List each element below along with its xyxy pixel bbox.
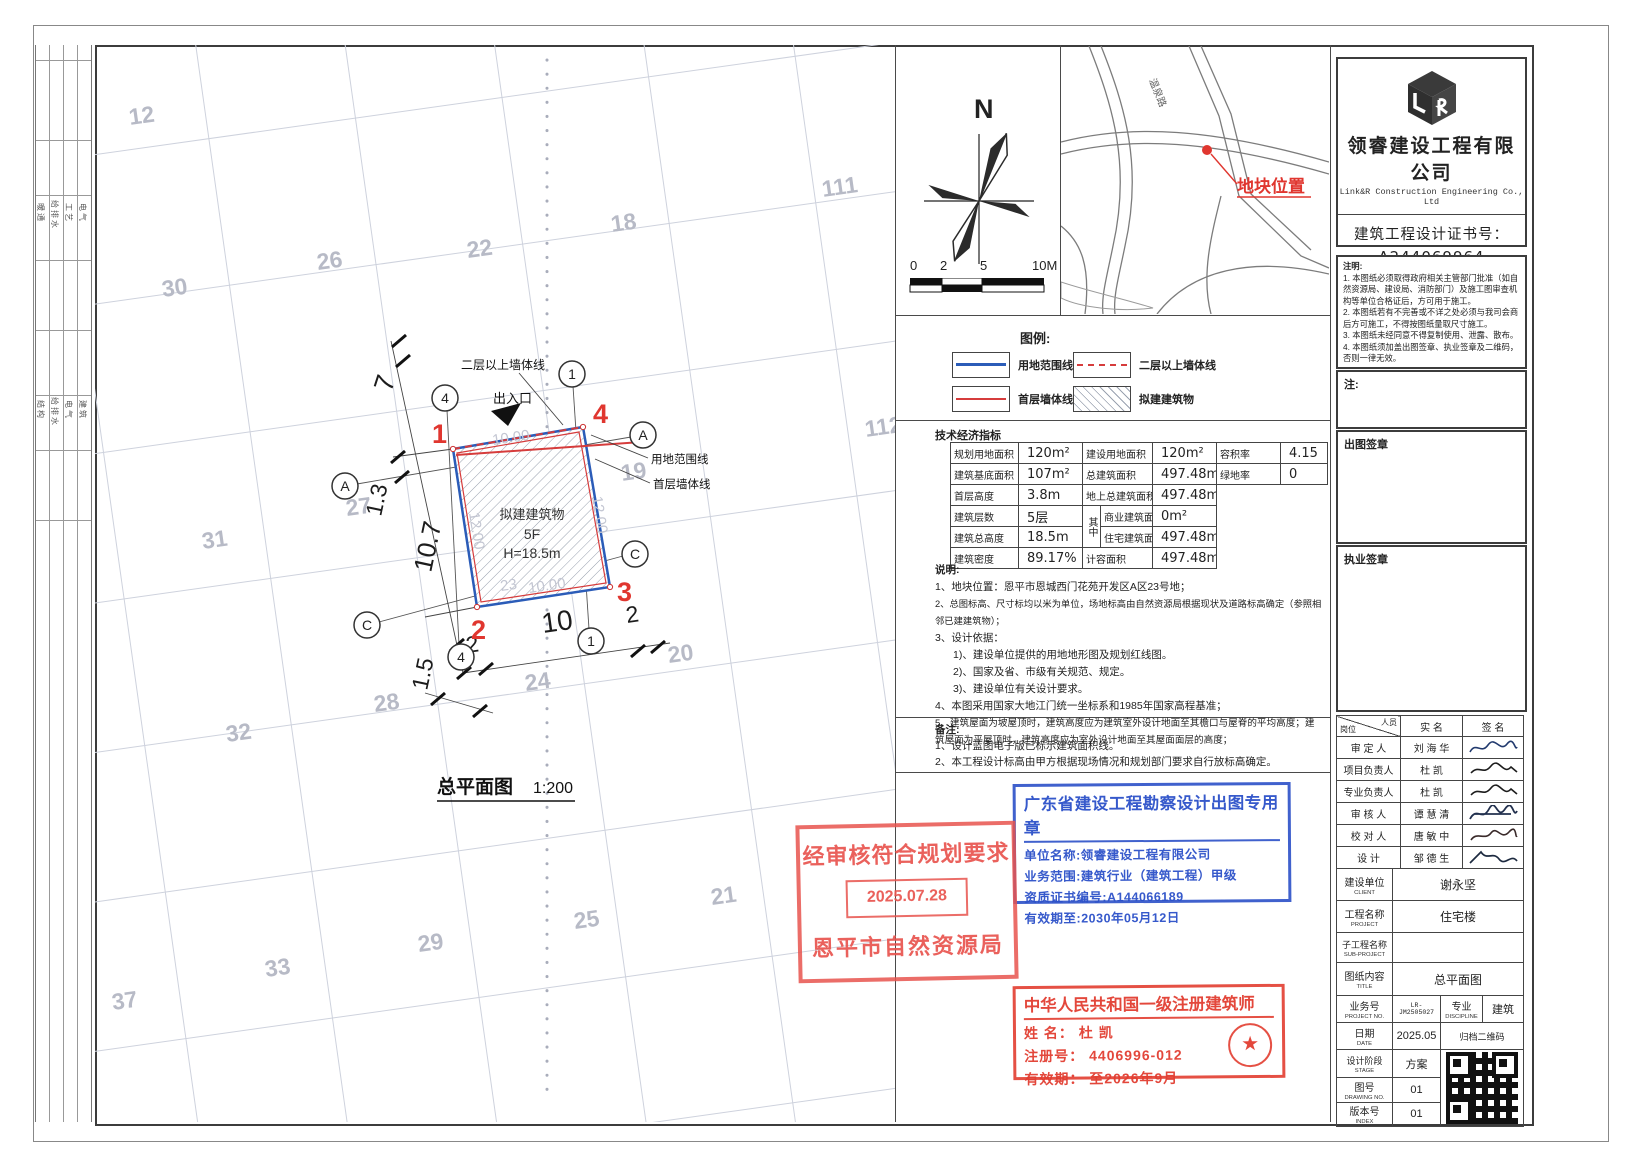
stamp-date: 2025.07.28 [846, 878, 969, 919]
divider [895, 772, 1330, 773]
personnel-header-sign: 签 名 [1463, 716, 1524, 737]
plan-caption-text: 总平面图 [437, 775, 513, 798]
tech-value: 3.8m [1019, 485, 1083, 506]
tech-label: 建设用地面积 [1083, 443, 1153, 464]
header-person: 人员 [1381, 717, 1397, 728]
plot-number: 111 [820, 171, 859, 202]
tech-label: 建筑总高度 [951, 527, 1019, 548]
personnel-name: 杜 凯 [1401, 759, 1463, 781]
company-name: 领睿建设工程有限公司 [1338, 131, 1525, 185]
plot-number: 20 [666, 639, 695, 668]
dim-text: 1.3 [360, 481, 392, 518]
strip-label: 给排水 [49, 397, 60, 427]
client-value: 谢永坚 [1393, 869, 1524, 901]
stamp-title: 中华人民共和国一级注册建筑师 [1024, 990, 1274, 1020]
dim-text: 7 [368, 371, 401, 395]
personnel-signature [1463, 803, 1524, 825]
strip-label: 建筑 [77, 400, 88, 420]
legend-label: 拟建建筑物 [1139, 391, 1194, 407]
note-line: 4. 本图纸须加盖出图签章、执业签章及二维码，否则一律无效。 [1343, 342, 1520, 365]
building-label: H=18.5m [503, 545, 560, 561]
personnel-signature [1463, 847, 1524, 869]
plot-number: 37 [110, 986, 139, 1015]
strip-line [36, 195, 91, 196]
tech-label: 住宅建筑面积 [1101, 527, 1153, 548]
personnel-post: 审 核 人 [1337, 803, 1401, 825]
tech-value: 497.48m² [1153, 527, 1217, 548]
planning-approval-stamp: 经审核符合规划要求 2025.07.28 恩平市自然资源局 [795, 821, 1018, 984]
legend-label: 用地范围线 [1018, 357, 1073, 373]
strip-label: 电气 [77, 203, 88, 223]
tech-value: 0 [1281, 464, 1328, 485]
project-value: 住宅楼 [1393, 901, 1524, 933]
tech-label: 建筑基底面积 [951, 464, 1019, 485]
drawing-no-value: 01 [1393, 1078, 1441, 1102]
plot-number: 21 [709, 881, 738, 910]
personnel-signature [1463, 737, 1524, 759]
corner-number: 1 [432, 419, 447, 449]
beizhu-line: 2、本工程设计标高由甲方根据现场情况和规划部门要求自行放标高确定。 [935, 754, 1323, 770]
seal-line: 业务范围:建筑行业（建筑工程）甲级 [1024, 864, 1280, 885]
seal-line: 有效期至:2030年05月12日 [1024, 906, 1280, 927]
strip-line [36, 330, 91, 331]
note-line: 3. 本图纸未经同意不得复制使用、泄露、散布。 [1343, 330, 1520, 342]
shuoming-title: 说明: [935, 562, 1323, 579]
plot-number: 112 [863, 411, 895, 442]
personnel-name: 邹 德 生 [1401, 847, 1463, 869]
tech-label: 商业建筑面积 [1101, 506, 1153, 527]
axis-bubble-label: C [630, 546, 640, 562]
shuoming-line: 1)、建设单位提供的用地地形图及规划红线图。 [935, 647, 1323, 664]
seal-line: 资质证书编号:A144066189 [1024, 885, 1280, 906]
tech-value: 107m² [1019, 464, 1083, 485]
personnel-name: 杜 凯 [1401, 781, 1463, 803]
building-label: 拟建建筑物 [499, 507, 564, 522]
north-scale-panel: N 0 2 5 10M [896, 46, 1059, 314]
personnel-header-name: 实 名 [1401, 716, 1463, 737]
legend-label: 二层以上墙体线 [1139, 357, 1216, 373]
map-river [1061, 282, 1153, 310]
strip-line [36, 60, 91, 61]
titleblock-label: 业务号PROJECT NO. [1337, 996, 1393, 1023]
marker-leader [1211, 154, 1237, 184]
annotation-label: 用地范围线 [651, 452, 709, 466]
shuoming-line: 4、本图采用国家大地江门统一坐标系和1985年国家高程基准； [935, 698, 1323, 715]
legend-swatch-upper-wall [1073, 352, 1131, 378]
personnel-post: 项目负责人 [1337, 759, 1401, 781]
issue-seal-box: 出图签章 [1336, 430, 1527, 544]
personnel-post: 审 定 人 [1337, 737, 1401, 759]
plan-caption: 总平面图 1:200 [437, 775, 575, 801]
strip-label: 给排水 [49, 200, 60, 230]
personnel-table: 岗位 人员 实 名 签 名 审 定 人 刘 海 华 项目负责人 杜 凯 专业负责… [1336, 715, 1524, 869]
tech-value: 4.15 [1281, 443, 1328, 464]
strip-line [36, 395, 91, 396]
strip-label: 结构 [35, 400, 46, 420]
stamp-line: 有效期： 至2026年9月 [1024, 1067, 1274, 1089]
dim-text: 10 [540, 604, 575, 639]
plot-number: 18 [609, 208, 638, 237]
plot-number: 24 [523, 667, 552, 696]
personnel-name: 刘 海 华 [1401, 737, 1463, 759]
tech-label: 绿地率 [1217, 464, 1281, 485]
legend-swatch-building [1073, 386, 1131, 412]
shuoming-line: 1、地块位置：恩平市恩城西门花苑开发区A区23号地； [935, 579, 1323, 596]
legend-label: 首层墙体线 [1018, 391, 1073, 407]
personnel-row: 项目负责人 杜 凯 [1337, 759, 1524, 781]
scale-bar-labels: 0 2 5 10M [906, 258, 1056, 276]
date-value: 2025.05 [1393, 1023, 1441, 1050]
plot-number: 30 [160, 273, 189, 302]
stage-value: 方案 [1393, 1050, 1441, 1078]
titleblock-label: 图号DRAWING NO. [1337, 1078, 1393, 1102]
tech-label: 建筑层数 [951, 506, 1019, 527]
personnel-row: 设 计 邹 德 生 [1337, 847, 1524, 869]
legend-item: 二层以上墙体线 [1073, 352, 1216, 378]
axis-bubble-label: C [362, 617, 372, 633]
legend-item: 首层墙体线 [952, 386, 1073, 412]
faint-dim: 23 [499, 576, 518, 595]
plot-number: 26 [315, 246, 344, 275]
qr-label: 归档二维码 [1441, 1023, 1524, 1050]
strip-line [36, 520, 91, 521]
personnel-post: 设 计 [1337, 847, 1401, 869]
corner-number: 2 [471, 615, 486, 645]
personnel-name: 唐 敏 中 [1401, 825, 1463, 847]
legend-title: 图例: [1020, 328, 1050, 347]
axis-bubble-label: 1 [568, 366, 576, 382]
personnel-row: 校 对 人 唐 敏 中 [1337, 825, 1524, 847]
tech-label: 首层高度 [951, 485, 1019, 506]
scale-tick: 2 [940, 258, 947, 273]
personnel-name: 谭 慧 清 [1401, 803, 1463, 825]
north-label: N [974, 94, 994, 125]
entrance-arrow-icon [491, 403, 521, 426]
architect-stamp: 中华人民共和国一级注册建筑师 姓 名： 杜 凯 注册号： 4406996-012… [1013, 984, 1286, 1080]
scale-tick: 5 [980, 258, 987, 273]
shuoming-line: 3、设计依据： [935, 630, 1323, 647]
plot-number: 22 [465, 234, 494, 263]
personnel-signature [1463, 825, 1524, 847]
site-plan-drawing: 12 30 26 22 18 111 112 19 27 31 20 24 28… [95, 45, 895, 1122]
strip-label: 工艺 [63, 203, 74, 223]
axis-bubble-label: 4 [457, 649, 465, 665]
tech-value: 0m² [1153, 506, 1217, 527]
titleblock-label: 日期DATE [1337, 1023, 1393, 1050]
strip-label: 暖通 [35, 203, 46, 223]
entrance-label: 出入口 [493, 391, 532, 406]
personnel-row: 专业负责人 杜 凯 [1337, 781, 1524, 803]
divider [1330, 45, 1331, 1122]
plot-number: 29 [416, 928, 445, 957]
strip-label: 电气 [63, 400, 74, 420]
axis-bubble-label: A [340, 478, 350, 494]
architect-emblem-icon: ★ [1228, 1023, 1272, 1067]
legend-swatch-boundary [952, 352, 1010, 378]
corner-number: 4 [593, 399, 608, 429]
strip-line [36, 140, 91, 141]
scale-tick: 0 [910, 258, 917, 273]
project-no-value: LR-JM2505027 [1393, 996, 1441, 1023]
strip-line [36, 260, 91, 261]
notes-beizhu: 备注: 1、设计蓝图电子版已标示建筑面积线。 2、本工程设计标高由甲方根据现场情… [935, 722, 1323, 770]
subproject-value [1393, 933, 1524, 963]
header-post: 岗位 [1340, 724, 1356, 735]
note-box: 注: [1336, 370, 1527, 429]
tech-value: 18.5m [1019, 527, 1083, 548]
notes-box: 注明: 1. 本图纸必须取得政府相关主管部门批准（如自然资源局、建设局、消防部门… [1336, 255, 1527, 369]
annotation-label: 二层以上墙体线 [461, 358, 545, 372]
personnel-post: 校 对 人 [1337, 825, 1401, 847]
tech-value: 120m² [1153, 443, 1217, 464]
beizhu-line: 1、设计蓝图电子版已标示建筑面积线。 [935, 738, 1323, 754]
title-block: 建设单位CLIENT 谢永坚 工程名称PROJECT 住宅楼 子工程名称SUB-… [1336, 868, 1524, 1127]
shuoming-line: 3)、建设单位有关设计要求。 [935, 681, 1323, 698]
shuoming-line: 2)、国家及省、市级有关规范、规定。 [935, 664, 1323, 681]
index-value: 01 [1393, 1102, 1441, 1126]
tech-empty [1217, 485, 1328, 569]
practice-seal-box: 执业签章 [1336, 545, 1527, 712]
cert-label: 建筑工程设计证书号： [1338, 223, 1525, 244]
shuoming-line: 2、总图标高、尺寸标均以米为单位，场地标高由自然资源局根据现状及道路标高确定（参… [935, 596, 1323, 630]
titleblock-label: 图纸内容TITLE [1337, 963, 1393, 996]
tech-value: 120m² [1019, 443, 1083, 464]
note-line: 1. 本图纸必须取得政府相关主管部门批准（如自然资源局、建设局、消防部门）及施工… [1343, 273, 1520, 308]
legend-item: 用地范围线 [952, 352, 1073, 378]
personnel-row: 审 核 人 谭 慧 清 [1337, 803, 1524, 825]
company-logo-icon [1405, 69, 1459, 127]
stamp-line: 经审核符合规划要求 [800, 835, 1013, 871]
legend-item: 拟建建筑物 [1073, 386, 1194, 412]
seal-title: 广东省建设工程勘察设计出图专用章 [1024, 789, 1280, 843]
archive-qr-code [1441, 1050, 1524, 1127]
note-line: 2. 本图纸若有不完善或不详之处必须与我司会商后方可施工，不得按图纸量取尺寸施工… [1343, 307, 1520, 330]
tech-label: 容积率 [1217, 443, 1281, 464]
personnel-post: 专业负责人 [1337, 781, 1401, 803]
compass-icon [914, 126, 1044, 266]
titleblock-label: 专业DISCIPLINE [1441, 996, 1483, 1023]
seal-line: 单位名称:领睿建设工程有限公司 [1024, 843, 1280, 864]
scale-tick: 10M [1032, 258, 1057, 273]
plot-number: 32 [224, 718, 253, 747]
axis-bubble-label: A [638, 427, 648, 443]
stamp-line: 恩平市自然资源局 [802, 927, 1015, 963]
tech-label: 其中 [1083, 506, 1101, 548]
notes-shuoming: 说明: 1、地块位置：恩平市恩城西门花苑开发区A区23号地； 2、总图标高、尺寸… [935, 562, 1323, 749]
note-box-label: 注: [1338, 372, 1525, 396]
legend-panel: 图例: 用地范围线 二层以上墙体线 首层墙体线 拟建建筑物 [895, 316, 1330, 420]
plot-number: 33 [263, 953, 292, 982]
plot-number: 28 [372, 688, 401, 717]
axis-bubble-label: 4 [441, 390, 449, 406]
gd-seal-stamp: 广东省建设工程勘察设计出图专用章 单位名称:领睿建设工程有限公司 业务范围:建筑… [1013, 782, 1292, 904]
tech-value: 497.48m² [1153, 464, 1217, 485]
notes-title: 注明: [1343, 261, 1520, 273]
titleblock-label: 设计阶段STAGE [1337, 1050, 1393, 1078]
tech-indicators-table: 规划用地面积 120m² 建设用地面积 120m² 容积率 4.15 建筑基底面… [950, 442, 1328, 569]
axis-bubble-label: 1 [587, 633, 595, 649]
legend-swatch-first-wall [952, 386, 1010, 412]
plot-number: 31 [200, 525, 229, 554]
titleblock-label: 子工程名称SUB-PROJECT [1337, 933, 1393, 963]
plan-caption-scale: 1:200 [533, 780, 573, 797]
road-name-label: 温泉路 [1146, 76, 1169, 109]
company-name-en: Link&R Construction Engineering Co., Ltd [1338, 187, 1525, 207]
titleblock-label: 版本号INDEX [1337, 1102, 1393, 1126]
tech-value: 497.48m² [1153, 485, 1217, 506]
personnel-signature [1463, 781, 1524, 803]
building-label: 5F [524, 526, 540, 542]
plot-number: 25 [572, 905, 601, 934]
titleblock-label: 建设单位CLIENT [1337, 869, 1393, 901]
site-marker-label: 地块位置 [1237, 176, 1305, 196]
beizhu-title: 备注: [935, 722, 1323, 738]
company-logo-box: 领睿建设工程有限公司 Link&R Construction Engineeri… [1336, 57, 1527, 247]
personnel-header-post-person: 岗位 人员 [1337, 716, 1401, 737]
plot-number: 12 [127, 101, 156, 130]
strip-line [36, 450, 91, 451]
tech-table-title: 技术经济指标 [935, 427, 1001, 443]
site-marker-icon [1202, 145, 1212, 155]
tech-label: 地上总建筑面积 [1083, 485, 1153, 506]
tech-value: 5层 [1019, 506, 1083, 527]
annotation-label: 首层墙体线 [653, 477, 711, 491]
dim-text: 10.7 [408, 519, 448, 575]
dim-text: 1.5 [406, 655, 438, 692]
titleblock-label: 工程名称PROJECT [1337, 901, 1393, 933]
corner-number: 3 [617, 577, 632, 607]
edge-signoff-strip: 暖通 给排水 工艺 电气 结构 给排水 电气 建筑 [35, 45, 92, 1122]
practice-seal-label: 执业签章 [1338, 547, 1525, 571]
personnel-row: 审 定 人 刘 海 华 [1337, 737, 1524, 759]
location-map: 地块位置 温泉路 [1061, 46, 1329, 314]
divider [895, 420, 1330, 421]
personnel-signature [1463, 759, 1524, 781]
issue-seal-label: 出图签章 [1338, 432, 1525, 456]
sheet-title-value: 总平面图 [1393, 963, 1524, 996]
discipline-value: 建筑 [1483, 996, 1524, 1023]
tech-label: 总建筑面积 [1083, 464, 1153, 485]
scale-bar [906, 278, 1056, 294]
tech-label: 规划用地面积 [951, 443, 1019, 464]
